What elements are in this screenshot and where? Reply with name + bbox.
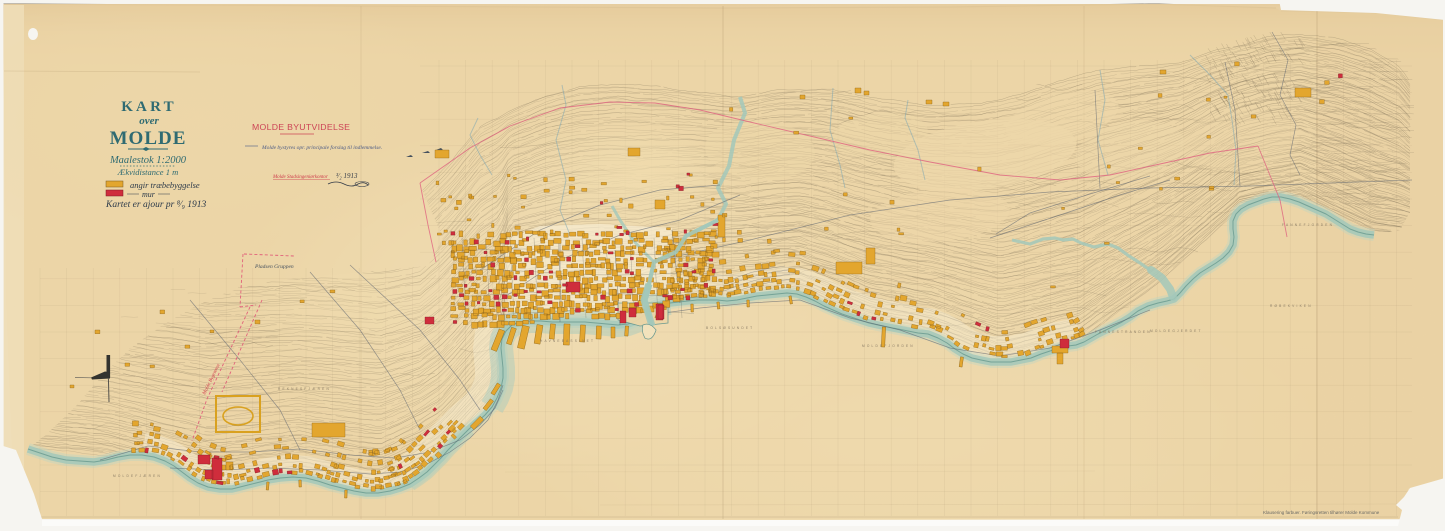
svg-text:MOLDE: MOLDE — [110, 128, 187, 149]
svg-text:Kartet er ajour pr ⁸⁄₉ 1913: Kartet er ajour pr ⁸⁄₉ 1913 — [105, 200, 207, 210]
svg-text:³⁄₂ 1913: ³⁄₂ 1913 — [336, 172, 358, 180]
svg-text:REKNESFJÆREN: REKNESFJÆREN — [278, 387, 331, 391]
svg-text:BOLSØSUNDET: BOLSØSUNDET — [706, 326, 754, 330]
svg-text:MOLDEFJORDEN: MOLDEFJORDEN — [862, 344, 915, 348]
svg-text:MOLDEFJÆREN: MOLDEFJÆREN — [113, 474, 162, 478]
svg-text:Molde Stadsingeniørkontor: Molde Stadsingeniørkontor — [272, 175, 328, 180]
svg-text:KART: KART — [121, 99, 177, 115]
svg-text:MOLDE BYUTVIDELSE: MOLDE BYUTVIDELSE — [252, 122, 350, 132]
svg-text:Klausering farbuer. Føringsret: Klausering farbuer. Føringsretten tilhør… — [1263, 510, 1380, 515]
svg-text:HAVNEBASSINET: HAVNEBASSINET — [540, 339, 595, 343]
svg-text:over: over — [139, 115, 159, 127]
svg-text:FANNESTRANDEN: FANNESTRANDEN — [1095, 330, 1152, 334]
svg-text:MOLDEGJERDET: MOLDEGJERDET — [1150, 329, 1203, 333]
svg-text:Pladsen Gruppen: Pladsen Gruppen — [254, 264, 294, 270]
svg-text:Molde bystyres opr. principale: Molde bystyres opr. principale forslag t… — [261, 144, 382, 151]
svg-text:mur: mur — [142, 190, 156, 199]
svg-text:RØBEKVIKEN: RØBEKVIKEN — [1270, 304, 1313, 308]
svg-text:FANNEFJORDEN: FANNEFJORDEN — [1282, 223, 1334, 227]
svg-text:angir træbebyggelse: angir træbebyggelse — [130, 180, 200, 190]
svg-text:Maalestok 1:2000: Maalestok 1:2000 — [109, 155, 187, 166]
svg-text:Ækvidistance 1 m: Ækvidistance 1 m — [117, 167, 178, 177]
